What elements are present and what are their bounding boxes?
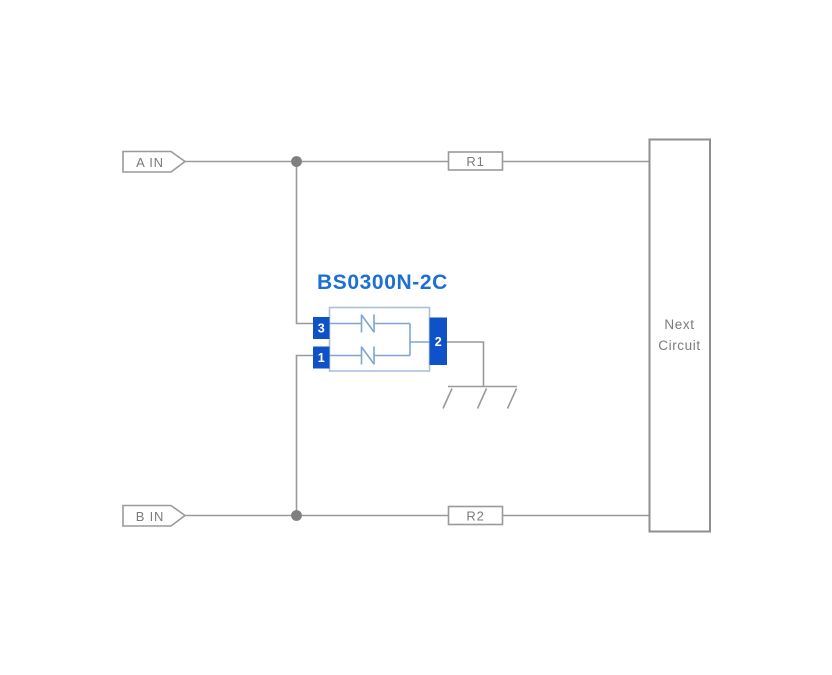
pin-2-number: 2 (435, 335, 442, 349)
input-tag-a-label: A IN (136, 155, 164, 170)
wire-junction-a-to-pin3 (297, 162, 314, 324)
resistor-r2: R2 (449, 507, 503, 525)
pin-1-number: 1 (318, 351, 325, 365)
component-title: BS0300N-2C (317, 271, 448, 295)
tvs-component: 3 1 2 (313, 308, 447, 372)
resistor-r2-label: R2 (466, 509, 484, 524)
component-body (330, 308, 430, 372)
resistor-r1: R1 (449, 152, 503, 170)
wire-pin2-to-ground (447, 342, 484, 386)
chassis-ground-icon (443, 387, 517, 409)
junction-dot-a (291, 156, 302, 167)
ground-hatch-1 (443, 389, 452, 409)
input-tag-a: A IN (123, 152, 185, 173)
ground-hatch-3 (508, 389, 517, 409)
next-circuit-label: Next Circuit (649, 139, 710, 532)
junction-dot-b (291, 510, 302, 521)
input-tag-b: B IN (123, 506, 185, 527)
ground-hatch-2 (478, 389, 487, 409)
resistor-r1-label: R1 (466, 154, 484, 169)
input-tag-b-label: B IN (136, 509, 164, 524)
circuit-diagram: A IN B IN R1 R2 (0, 0, 832, 675)
pin-3-number: 3 (318, 322, 325, 336)
wire-junction-b-to-pin1 (297, 356, 314, 516)
